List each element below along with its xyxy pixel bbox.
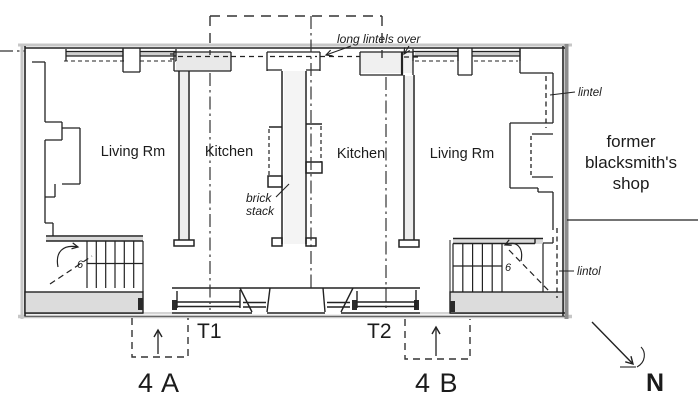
unit-label-4b: 4 B [415,368,459,398]
room-label-kitchen-4b: Kitchen [337,146,385,162]
room-label-kitchen-4a: Kitchen [205,144,253,160]
annotation-long-lintels: long lintels over [337,32,421,46]
annotation-brick: brick [246,191,272,205]
unit-label-4a: 4 A [138,368,180,398]
shop-label-line3: shop [613,174,650,193]
floor-plan: Living Rm Kitchen Kitchen Living Rm form… [0,0,700,411]
annotation-lintel-front: lintol [577,266,601,278]
annotation-stack: stack [246,204,275,218]
north-label: N [646,369,664,397]
stair-riser-count-4a: 6 [77,259,84,271]
stair-riser-count-4b: 6 [505,262,512,274]
annotation-lintel-rear: lintel [578,87,602,99]
room-label-living-4a: Living Rm [101,144,165,160]
room-label-living-4b: Living Rm [430,146,494,162]
shop-label-line2: blacksmith's [585,153,677,172]
floor-plan-drawing: Living Rm Kitchen Kitchen Living Rm form… [0,0,700,411]
section-marker-t2: T2 [367,320,392,343]
shop-label-line1: former [606,132,655,151]
paper-background [0,0,700,411]
section-marker-t1: T1 [197,320,222,343]
